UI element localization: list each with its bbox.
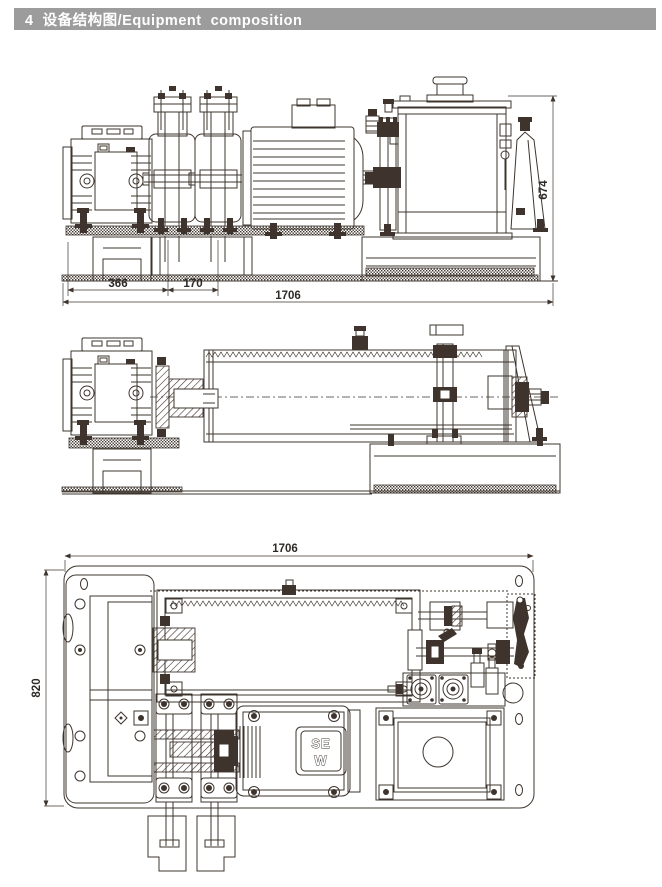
relief-valve bbox=[471, 663, 484, 687]
dim-label-1706-plan: 1706 bbox=[272, 543, 298, 555]
base-frame-front bbox=[62, 226, 558, 281]
base-frame-side bbox=[62, 432, 560, 494]
dim-label-366: 366 bbox=[108, 278, 127, 290]
bearing-cylinder-units-front bbox=[143, 86, 242, 262]
dim-label-820: 820 bbox=[31, 678, 43, 697]
support-bracket-side bbox=[506, 346, 549, 442]
mixing-drum-plan bbox=[153, 580, 422, 702]
motor-plan: SE W bbox=[170, 706, 360, 798]
pressure-valve bbox=[486, 668, 498, 694]
dim-label-1706-front: 1706 bbox=[275, 290, 301, 302]
gear-reducer-side bbox=[63, 338, 152, 445]
support-bracket-front bbox=[511, 117, 548, 232]
drawing-root: 366 170 1706 674 bbox=[31, 77, 560, 871]
shaft-linkage-plan bbox=[416, 594, 535, 678]
gear-reducer-front bbox=[63, 126, 152, 233]
breather-cap bbox=[433, 77, 467, 84]
motor-front bbox=[243, 99, 378, 239]
motor-brand-line1: SE bbox=[311, 736, 330, 751]
front-elevation-view: 366 170 1706 674 bbox=[62, 77, 558, 306]
manual-page: { "header": { "title": "4 设备结构图/Equipmen… bbox=[0, 0, 662, 887]
dim-label-170: 170 bbox=[183, 278, 202, 290]
chain-drive-front bbox=[365, 99, 401, 236]
gear-pumps-plan bbox=[388, 648, 505, 706]
valve-column-side bbox=[350, 325, 512, 444]
dim-label-674: 674 bbox=[538, 180, 550, 200]
motor-brand-line2: W bbox=[314, 753, 327, 768]
section-header: 4 设备结构图/Equipment composition bbox=[14, 8, 656, 30]
section-header-title: 4 设备结构图/Equipment composition bbox=[25, 9, 302, 30]
oil-tank-plan bbox=[376, 708, 504, 800]
mounting-feet-plan bbox=[148, 802, 235, 871]
side-elevation-view bbox=[62, 325, 560, 494]
equipment-structure-drawing: 366 170 1706 674 bbox=[0, 0, 662, 887]
plan-view: 1706 820 bbox=[31, 543, 535, 871]
gear-reducer-plan bbox=[63, 575, 154, 803]
oil-tank-front bbox=[390, 77, 512, 239]
